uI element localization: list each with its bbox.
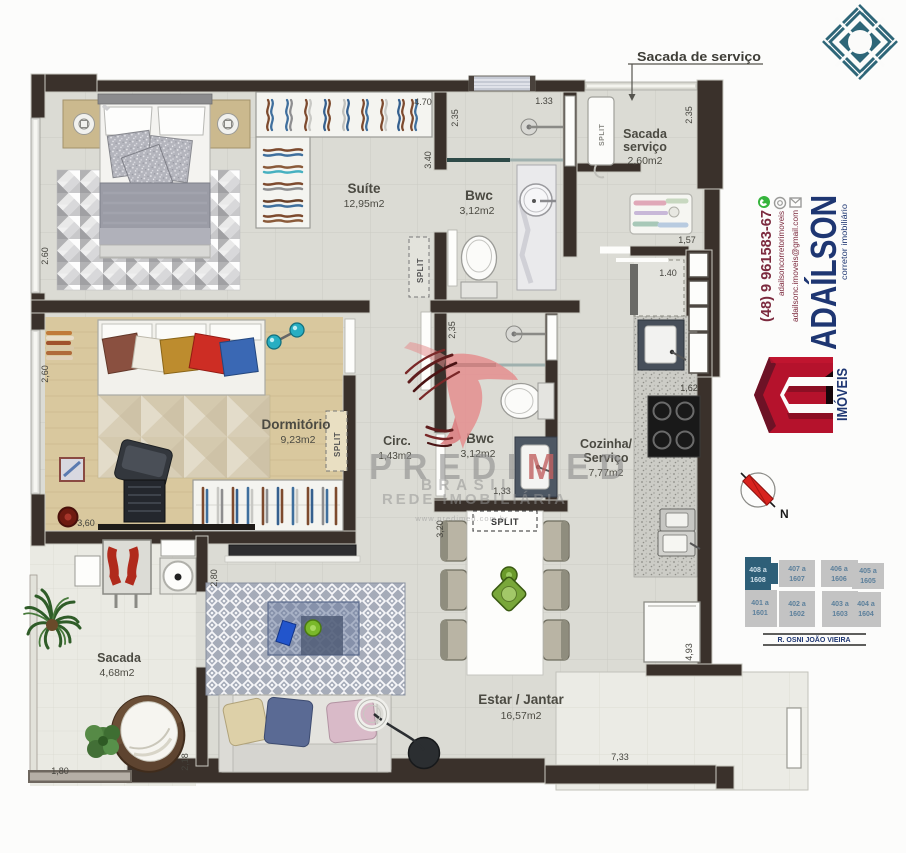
svg-text:16,57m2: 16,57m2 xyxy=(501,710,542,722)
svg-text:2,80: 2,80 xyxy=(209,569,219,587)
svg-text:1.33: 1.33 xyxy=(535,96,553,106)
svg-text:Bwc: Bwc xyxy=(466,431,494,446)
svg-text:1603: 1603 xyxy=(832,611,848,618)
svg-text:serviço: serviço xyxy=(623,140,667,154)
svg-text:1602: 1602 xyxy=(789,611,805,618)
svg-text:ADAÍLSON: ADAÍLSON xyxy=(803,195,844,350)
svg-text:R. OSNI JOÃO VIEIRA: R. OSNI JOÃO VIEIRA xyxy=(777,635,850,644)
svg-text:407 a: 407 a xyxy=(788,566,806,573)
svg-text:7,33: 7,33 xyxy=(611,752,629,762)
svg-text:406 a: 406 a xyxy=(830,566,848,573)
svg-text:3,12m2: 3,12m2 xyxy=(459,205,494,217)
svg-text:405 a: 405 a xyxy=(859,568,877,575)
svg-text:4,68m2: 4,68m2 xyxy=(99,667,134,679)
svg-text:corretor imobiliário: corretor imobiliário xyxy=(840,203,849,280)
svg-text:2,35: 2,35 xyxy=(447,321,457,339)
svg-text:Dormitório: Dormitório xyxy=(262,417,331,432)
svg-text:1605: 1605 xyxy=(860,578,876,585)
svg-text:4.70: 4.70 xyxy=(414,97,432,107)
svg-text:403 a: 403 a xyxy=(831,601,849,608)
svg-text:adailsonc.imoveis@gmail.com: adailsonc.imoveis@gmail.com xyxy=(791,210,800,322)
svg-text:2.35: 2.35 xyxy=(684,106,694,124)
svg-text:1606: 1606 xyxy=(831,576,847,583)
svg-text:12,95m2: 12,95m2 xyxy=(344,198,385,210)
svg-text:SPLIT: SPLIT xyxy=(416,258,425,283)
svg-text:N: N xyxy=(780,507,789,521)
svg-text:1,57: 1,57 xyxy=(678,235,696,245)
svg-text:1601: 1601 xyxy=(752,610,768,617)
svg-text:REDE IMOBILIÁRIA: REDE IMOBILIÁRIA xyxy=(382,491,568,508)
svg-text:3,60: 3,60 xyxy=(77,518,95,528)
svg-text:Sacada: Sacada xyxy=(97,651,142,665)
svg-text:2,60: 2,60 xyxy=(40,365,50,383)
svg-text:2.35: 2.35 xyxy=(450,109,460,127)
svg-text:IMÓVEIS: IMÓVEIS xyxy=(833,368,851,421)
svg-text:3.40: 3.40 xyxy=(423,151,433,169)
svg-text:Sacada: Sacada xyxy=(623,127,668,141)
svg-text:4,93: 4,93 xyxy=(684,643,694,661)
svg-text:SPLIT: SPLIT xyxy=(333,432,342,457)
svg-text:2,18: 2,18 xyxy=(180,753,190,771)
svg-text:www.predimed.com.br: www.predimed.com.br xyxy=(414,514,508,523)
svg-text:2.60: 2.60 xyxy=(40,247,50,265)
svg-text:404 a: 404 a xyxy=(857,601,875,608)
svg-text:Bwc: Bwc xyxy=(465,188,493,203)
svg-text:SPLIT: SPLIT xyxy=(599,123,606,146)
svg-text:Suíte: Suíte xyxy=(347,181,380,196)
svg-text:Estar / Jantar: Estar / Jantar xyxy=(478,692,564,707)
svg-text:1604: 1604 xyxy=(858,611,874,618)
svg-text:402 a: 402 a xyxy=(788,601,806,608)
svg-text:adailsoncorretorimoveis: adailsoncorretorimoveis xyxy=(777,211,786,296)
svg-text:408 a: 408 a xyxy=(749,567,767,574)
svg-text:(48) 9 961583-67: (48) 9 961583-67 xyxy=(759,210,775,322)
svg-text:1607: 1607 xyxy=(789,576,805,583)
svg-text:9,23m2: 9,23m2 xyxy=(280,434,315,446)
svg-text:1608: 1608 xyxy=(750,577,766,584)
svg-text:1,62: 1,62 xyxy=(680,383,698,393)
svg-text:1.40: 1.40 xyxy=(659,268,677,278)
svg-text:1,80: 1,80 xyxy=(51,766,69,776)
svg-text:401 a: 401 a xyxy=(751,600,769,607)
svg-text:2,60m2: 2,60m2 xyxy=(627,155,662,167)
svg-text:Sacada de serviço: Sacada de serviço xyxy=(637,50,761,64)
